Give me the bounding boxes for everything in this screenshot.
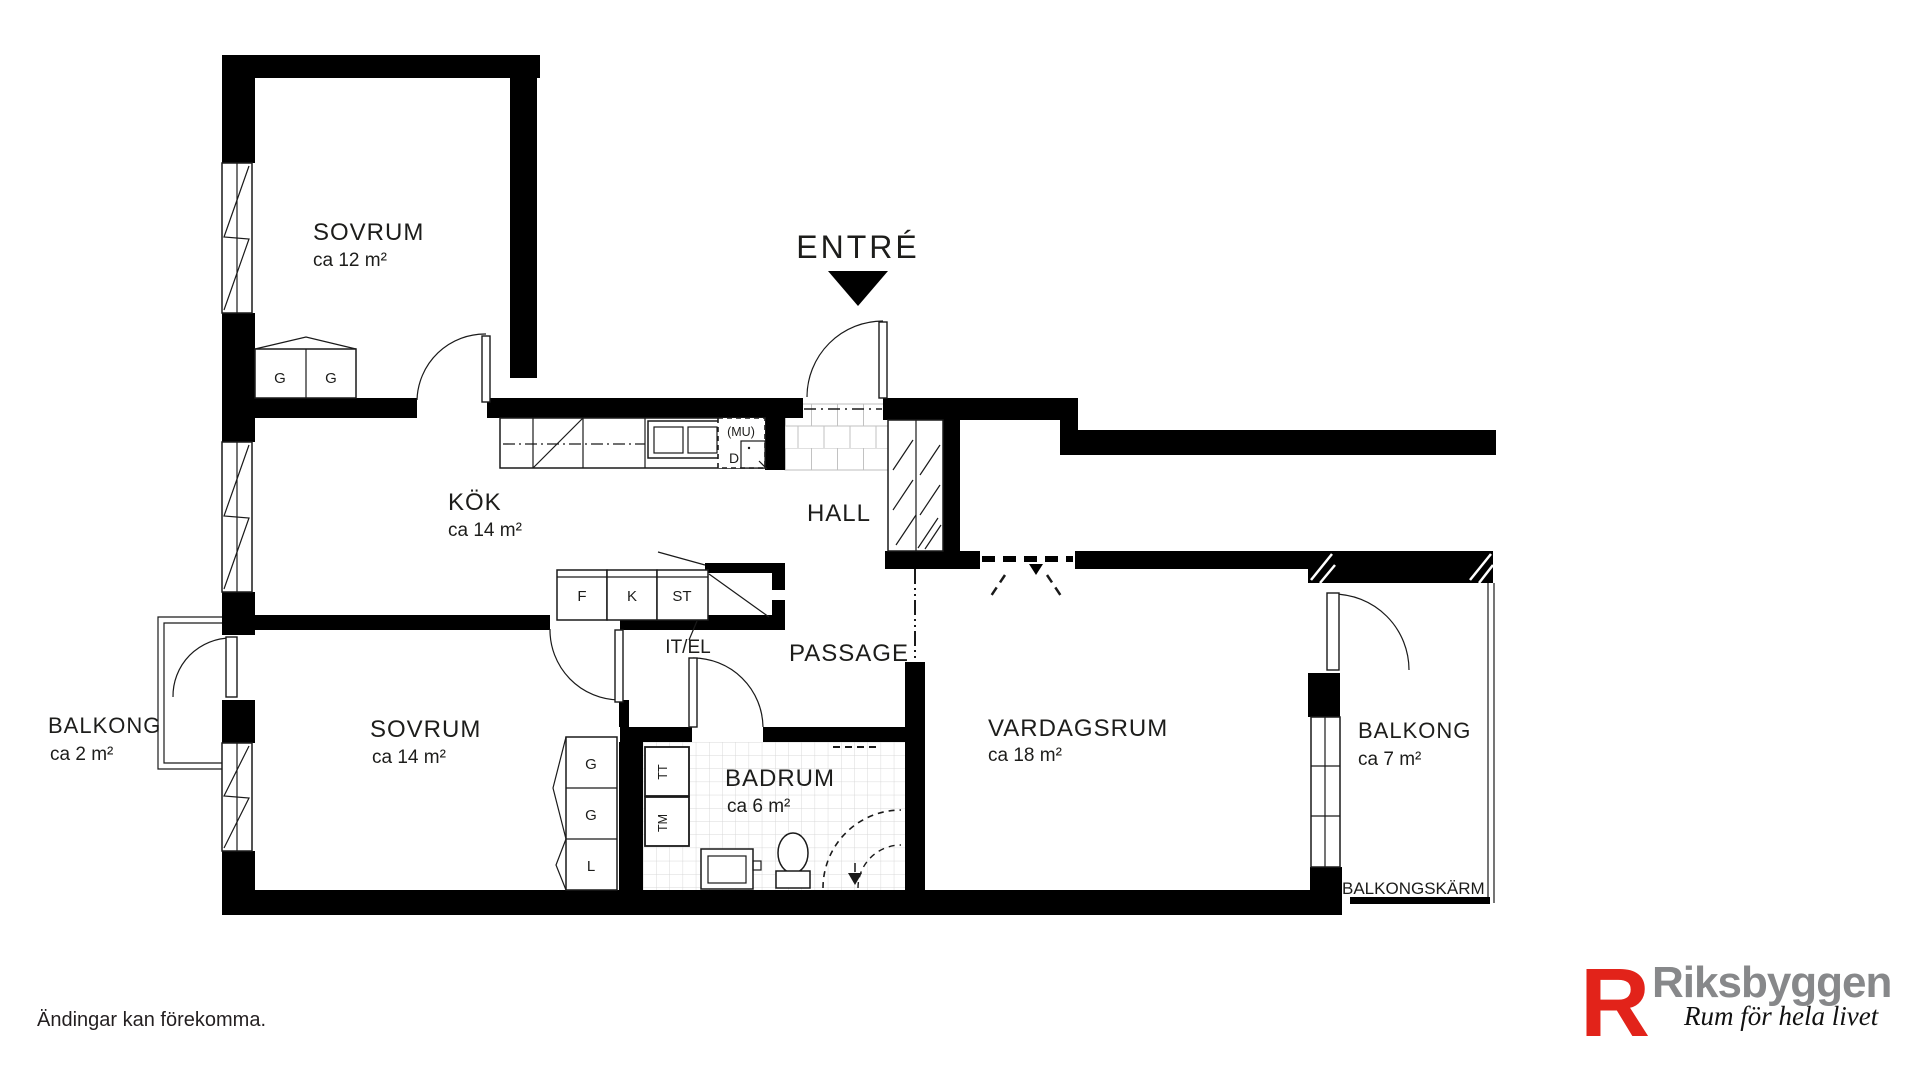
window-sovrum1	[222, 163, 252, 313]
area-label-badrum: ca 6 m²	[727, 796, 790, 817]
window-vardagsrum	[1311, 717, 1340, 867]
entre-label: ENTRÉ	[796, 229, 919, 265]
area-label-balkong-left: ca 2 m²	[50, 744, 113, 765]
it-el-label: IT/EL	[665, 637, 710, 658]
room-label-hall: HALL	[807, 500, 871, 527]
riksbyggen-tagline: Rum för hela livet	[1683, 1001, 1880, 1031]
hall-closet	[888, 420, 943, 551]
toilet	[776, 833, 810, 888]
area-label-sovrum2: ca 14 m²	[372, 747, 446, 768]
riksbyggen-brand-text: Riksbyggen	[1652, 958, 1891, 1007]
balkongskarm-screen	[1350, 897, 1490, 904]
floorplan-drawing: ENTRÉ SOVRUM ca 12 m² KÖK ca 14 m² HALL …	[0, 0, 1920, 1080]
door-badrum	[689, 658, 763, 727]
entre-arrow-icon	[828, 271, 888, 306]
balcony-left-outline	[158, 617, 222, 769]
window-kok	[222, 442, 252, 592]
area-label-balkong-right: ca 7 m²	[1358, 749, 1421, 770]
area-label-kok: ca 14 m²	[448, 520, 522, 541]
closet-label-g4: G	[585, 807, 597, 824]
door-balcony-right	[1327, 593, 1409, 670]
bathroom-sink	[701, 849, 761, 889]
closet-label-l: L	[587, 858, 595, 875]
room-label-vardagsrum: VARDAGSRUM	[988, 715, 1168, 742]
room-label-sovrum1: SOVRUM	[313, 219, 424, 246]
closet-label-g1: G	[274, 370, 286, 387]
room-label-kok: KÖK	[448, 489, 502, 516]
window-sovrum2	[222, 743, 252, 851]
disclaimer-text: Ändingar kan förekomma.	[37, 1009, 266, 1031]
riksbyggen-logo-mark: R	[1580, 948, 1650, 1057]
room-label-passage: PASSAGE	[789, 640, 909, 667]
cabinet-label-k: K	[627, 588, 637, 605]
floorplan-page: ENTRÉ SOVRUM ca 12 m² KÖK ca 14 m² HALL …	[0, 0, 1920, 1080]
room-label-balkong-left: BALKONG	[48, 713, 161, 738]
tm-label: TM	[656, 814, 670, 832]
closet-label-g2: G	[325, 370, 337, 387]
riksbyggen-logo: R Riksbyggen Rum för hela livet	[1580, 948, 1891, 1057]
balkongskarm-label: BALKONGSKÄRM	[1342, 879, 1485, 898]
room-label-sovrum2: SOVRUM	[370, 716, 481, 743]
mu-label: (MU)	[727, 425, 755, 439]
cabinet-label-st: ST	[672, 588, 691, 605]
wardrobe-sovrum1	[255, 337, 356, 398]
d-label: D	[729, 450, 739, 466]
area-label-sovrum1: ca 12 m²	[313, 250, 387, 271]
room-label-badrum: BADRUM	[725, 765, 835, 792]
vardagsrum-future-opening	[982, 559, 1073, 596]
door-sovrum2	[550, 629, 623, 702]
room-label-balkong-right: BALKONG	[1358, 718, 1471, 743]
kitchen-sink	[648, 421, 719, 458]
door-balcony-left	[173, 637, 237, 697]
cabinet-label-f: F	[577, 588, 586, 605]
balcony-right-outline	[1350, 583, 1494, 904]
area-label-vardagsrum: ca 18 m²	[988, 745, 1062, 766]
door-sovrum1	[417, 334, 490, 402]
tt-label: TT	[656, 764, 670, 780]
door-entry	[804, 321, 887, 409]
closet-label-g3: G	[585, 756, 597, 773]
